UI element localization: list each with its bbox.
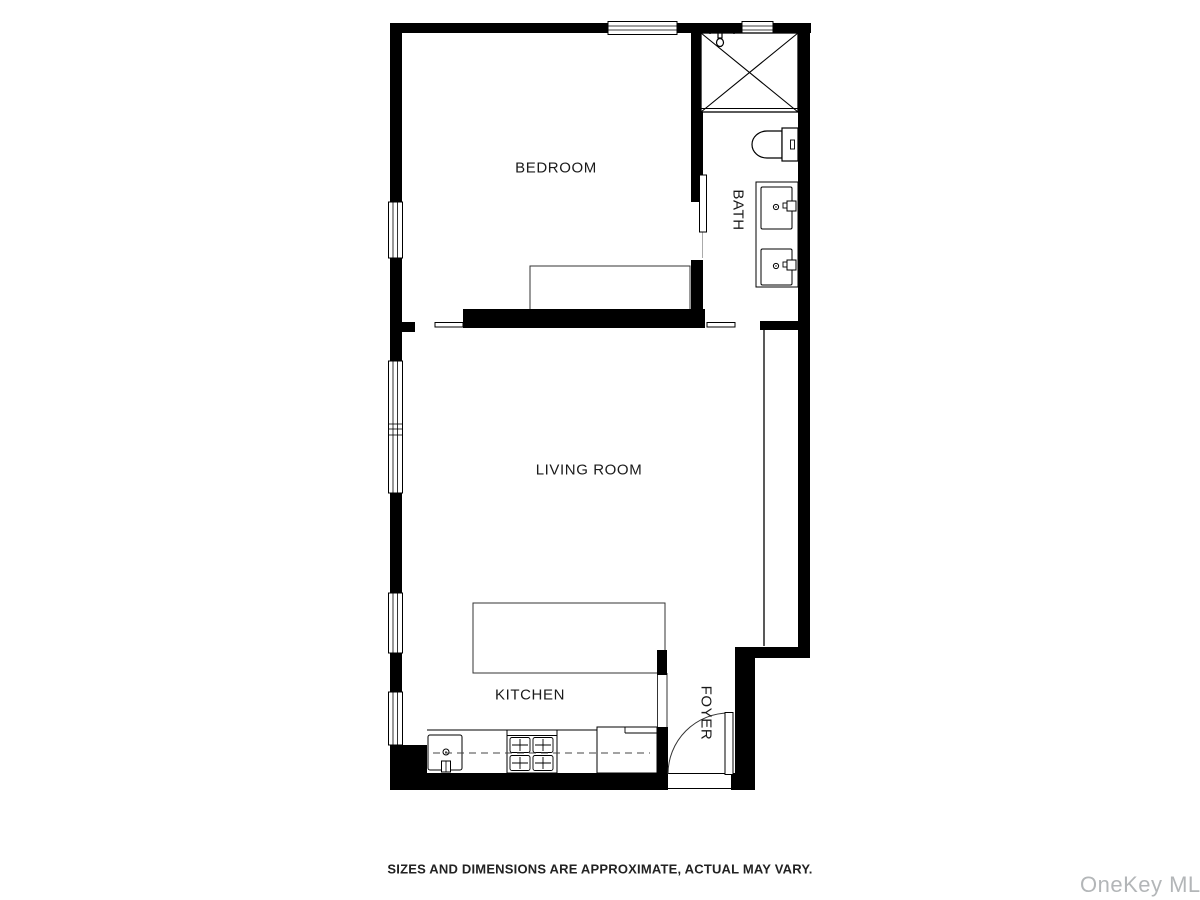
vanity-sink-2 <box>761 249 796 285</box>
bedroom-living-divider-wall <box>463 309 705 328</box>
bedroom-left-window <box>389 202 403 258</box>
room-label-foyer: FOYER <box>698 686 715 741</box>
room-label-bedroom: BEDROOM <box>515 160 597 177</box>
floor-plan-drawing <box>0 0 1200 900</box>
bath-sliding-door-leaf <box>700 175 707 232</box>
vanity-sink-1 <box>761 187 796 229</box>
entry-door-leaf <box>725 713 733 775</box>
living-left-window-2 <box>389 593 403 653</box>
island-notch-wall <box>657 650 667 675</box>
divider-left-stub <box>402 322 415 332</box>
refrigerator <box>597 727 657 773</box>
stove-cooktop <box>507 730 557 773</box>
living-left-window-1 <box>389 361 403 493</box>
bedroom-opening-marker <box>435 323 463 328</box>
foyer-right-wall <box>735 647 755 790</box>
vanity-sinks <box>756 182 798 287</box>
divider-right-stub <box>760 321 810 330</box>
shower <box>701 27 798 112</box>
entry-opening <box>668 772 731 791</box>
floor-plan-canvas: BEDROOM BATH LIVING ROOM KITCHEN FOYER <box>0 0 1200 900</box>
disclaimer-text: SIZES AND DIMENSIONS ARE APPROXIMATE, AC… <box>387 862 812 877</box>
room-label-bath: BATH <box>730 189 747 230</box>
room-label-kitchen: KITCHEN <box>495 687 565 704</box>
kitchen-left-window <box>389 692 403 745</box>
room-label-living-room: LIVING ROOM <box>536 462 643 479</box>
top-window-1 <box>608 22 677 35</box>
bath-wall-lower <box>691 260 703 328</box>
right-wall <box>798 23 810 658</box>
walls <box>390 23 811 790</box>
bed <box>530 266 690 310</box>
kitchen-foyer-wall <box>657 727 668 773</box>
toilet <box>752 128 798 161</box>
bath-corridor-opening-marker <box>707 323 735 328</box>
kitchen-appliances <box>427 727 657 773</box>
watermark-onekey-mls: OneKey MLS <box>1080 872 1200 898</box>
kitchen-island <box>473 603 665 673</box>
